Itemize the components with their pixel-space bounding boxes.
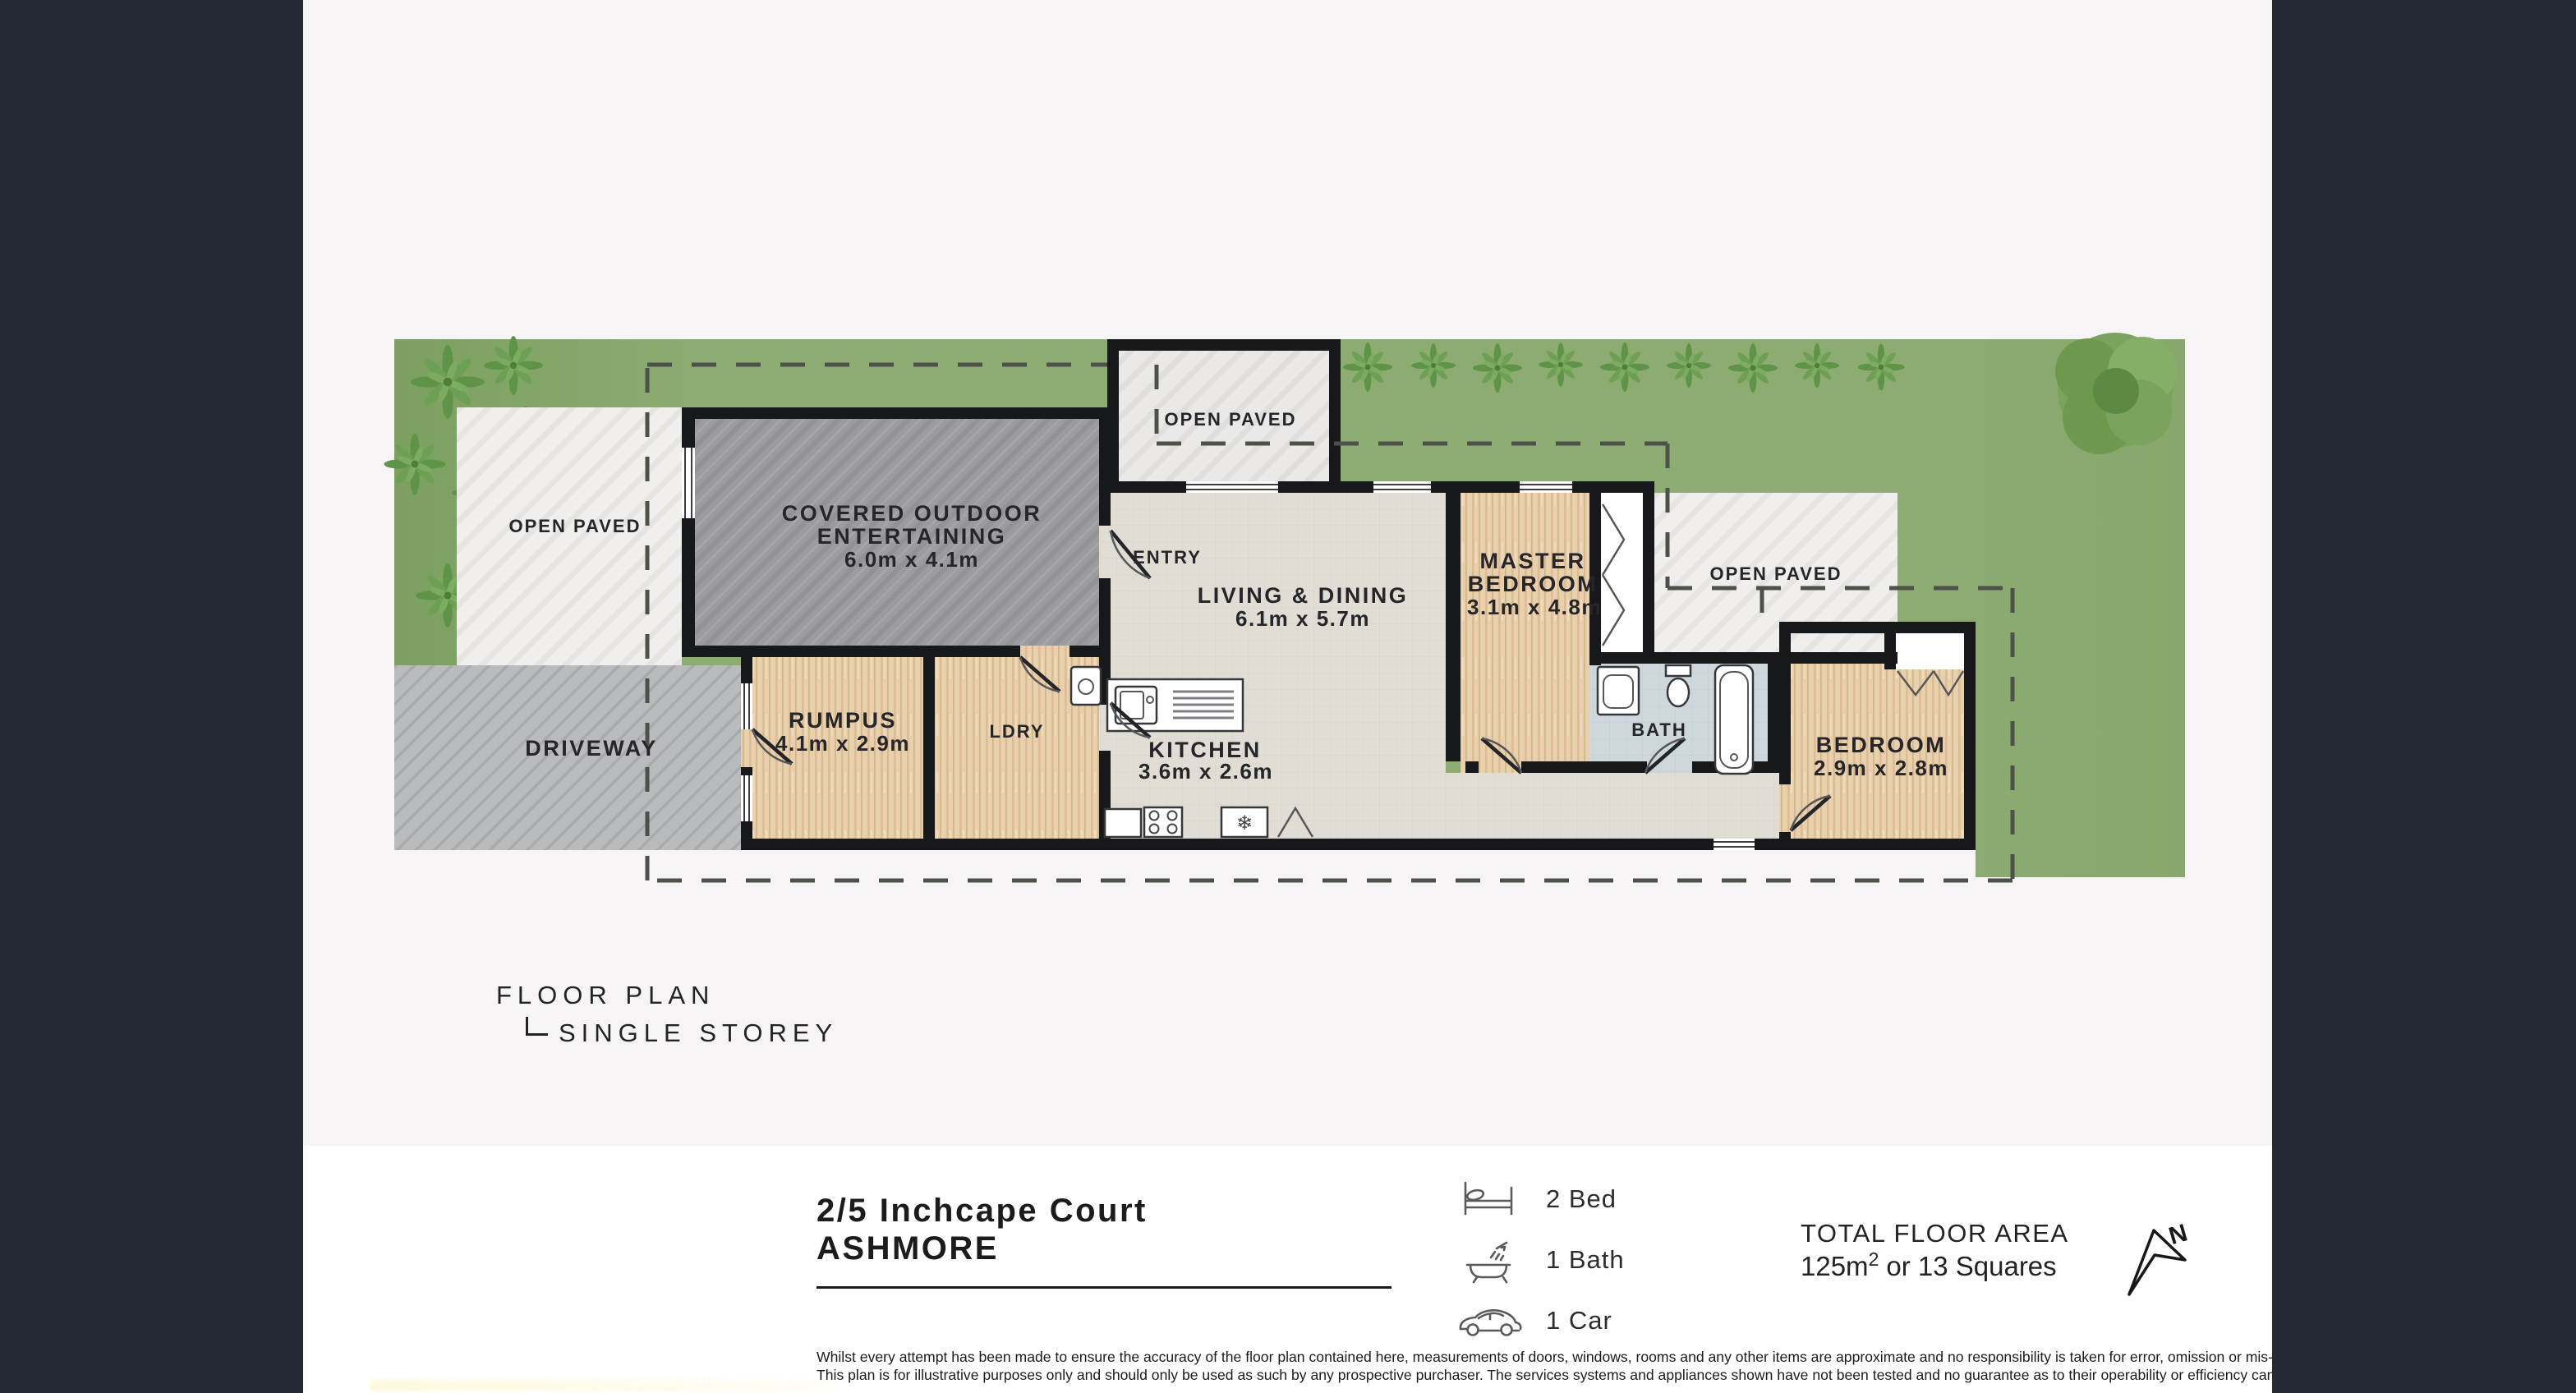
label-open-paved-right: OPEN PAVED [1710,563,1842,584]
label-driveway: DRIVEWAY [525,736,658,761]
right-dark-band [2272,0,2576,1393]
label-ldry: LDRY [989,721,1044,742]
label-bath: BATH [1631,719,1686,740]
label-master-1: MASTER [1480,549,1586,573]
label-covered-outdoor-dims: 6.0m x 4.1m [844,547,979,572]
label-kitchen-dims: 3.6m x 2.6m [1138,759,1273,784]
bath-vanity [1598,667,1639,715]
total-floor-area-title: TOTAL FLOOR AREA [1801,1219,2069,1248]
feature-bath-label: 1 Bath [1546,1245,1625,1275]
label-master-2: BEDROOM [1468,572,1598,596]
car-icon [1454,1298,1528,1339]
kitchen-island [1107,679,1243,731]
feature-bath: 1 Bath [1454,1237,1725,1286]
label-entry: ENTRY [1133,547,1202,568]
label-rumpus-dims: 4.1m x 2.9m [775,731,910,756]
fridge: ❄ [1221,807,1267,837]
area-rest: or 13 Squares [1886,1251,2056,1281]
area-superscript: 2 [1869,1248,1879,1270]
label-covered-outdoor-1: COVERED OUTDOOR [782,501,1042,526]
stove [1144,807,1182,837]
watermark [370,1380,838,1391]
feature-bed: 2 Bed [1454,1176,1725,1225]
bathtub [1715,665,1753,774]
label-master-dims: 3.1m x 4.8m [1467,595,1602,619]
label-open-paved-left: OPEN PAVED [509,516,642,536]
label-bedroom-dims: 2.9m x 2.8m [1814,756,1948,780]
label-covered-outdoor-2: ENTERTAINING [817,524,1007,549]
north-arrow-icon: N [2116,1212,2206,1303]
page-title-suburb: ASHMORE [816,1230,999,1267]
feature-car: 1 Car [1454,1298,1725,1347]
feature-bed-label: 2 Bed [1546,1184,1617,1214]
page: ❄ [0,0,2576,1393]
title-divider [816,1286,1391,1289]
disclaimer-line-2: This plan is for illustrative purposes o… [816,1367,2338,1384]
page-title-address: 2/5 Inchcape Court [816,1193,1148,1230]
laundry-tub [1071,667,1101,705]
feature-car-label: 1 Car [1546,1306,1612,1336]
total-floor-area-value: 125m2or 13 Squares [1801,1248,2057,1282]
area-value: 125m [1801,1251,1869,1281]
svg-text:❄: ❄ [1236,811,1253,834]
open-paved-left-area [457,407,682,665]
label-courtyard: OPEN PAVED [1165,409,1297,430]
disclaimer-line-1: Whilst every attempt has been made to en… [816,1349,2340,1366]
label-bedroom: BEDROOM [1816,733,1947,757]
toilet [1666,665,1690,706]
left-dark-band [0,0,303,1393]
legend-floor-plan: FLOOR PLAN [496,981,715,1010]
kitchen-cabinet [1105,809,1141,837]
label-living-dining-dims: 6.1m x 5.7m [1235,606,1370,631]
garden-tree [2055,333,2177,454]
bath-icon [1454,1237,1523,1286]
bed-icon [1454,1176,1523,1221]
label-living-dining: LIVING & DINING [1198,583,1409,608]
label-rumpus: RUMPUS [789,708,897,733]
legend-corner-glyph [526,1017,548,1036]
legend-single-storey: SINGLE STOREY [559,1018,838,1048]
